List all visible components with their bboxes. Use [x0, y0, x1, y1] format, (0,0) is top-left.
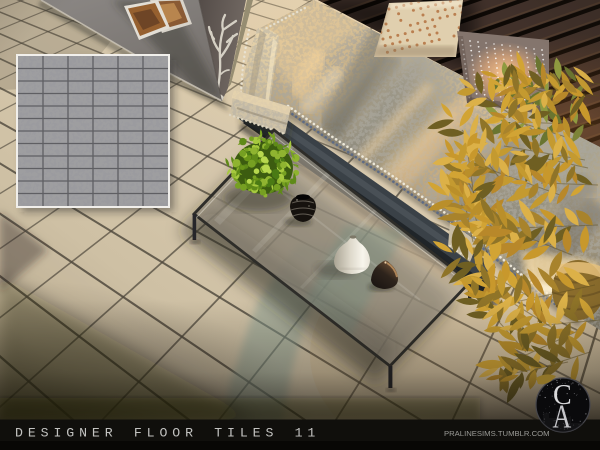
- svg-text:A: A: [553, 397, 572, 435]
- svg-text:PRALINESIMS.TUMBLR.COM: PRALINESIMS.TUMBLR.COM: [444, 429, 550, 438]
- svg-text:DESIGNER FLOOR TILES 11: DESIGNER FLOOR TILES 11: [15, 426, 320, 441]
